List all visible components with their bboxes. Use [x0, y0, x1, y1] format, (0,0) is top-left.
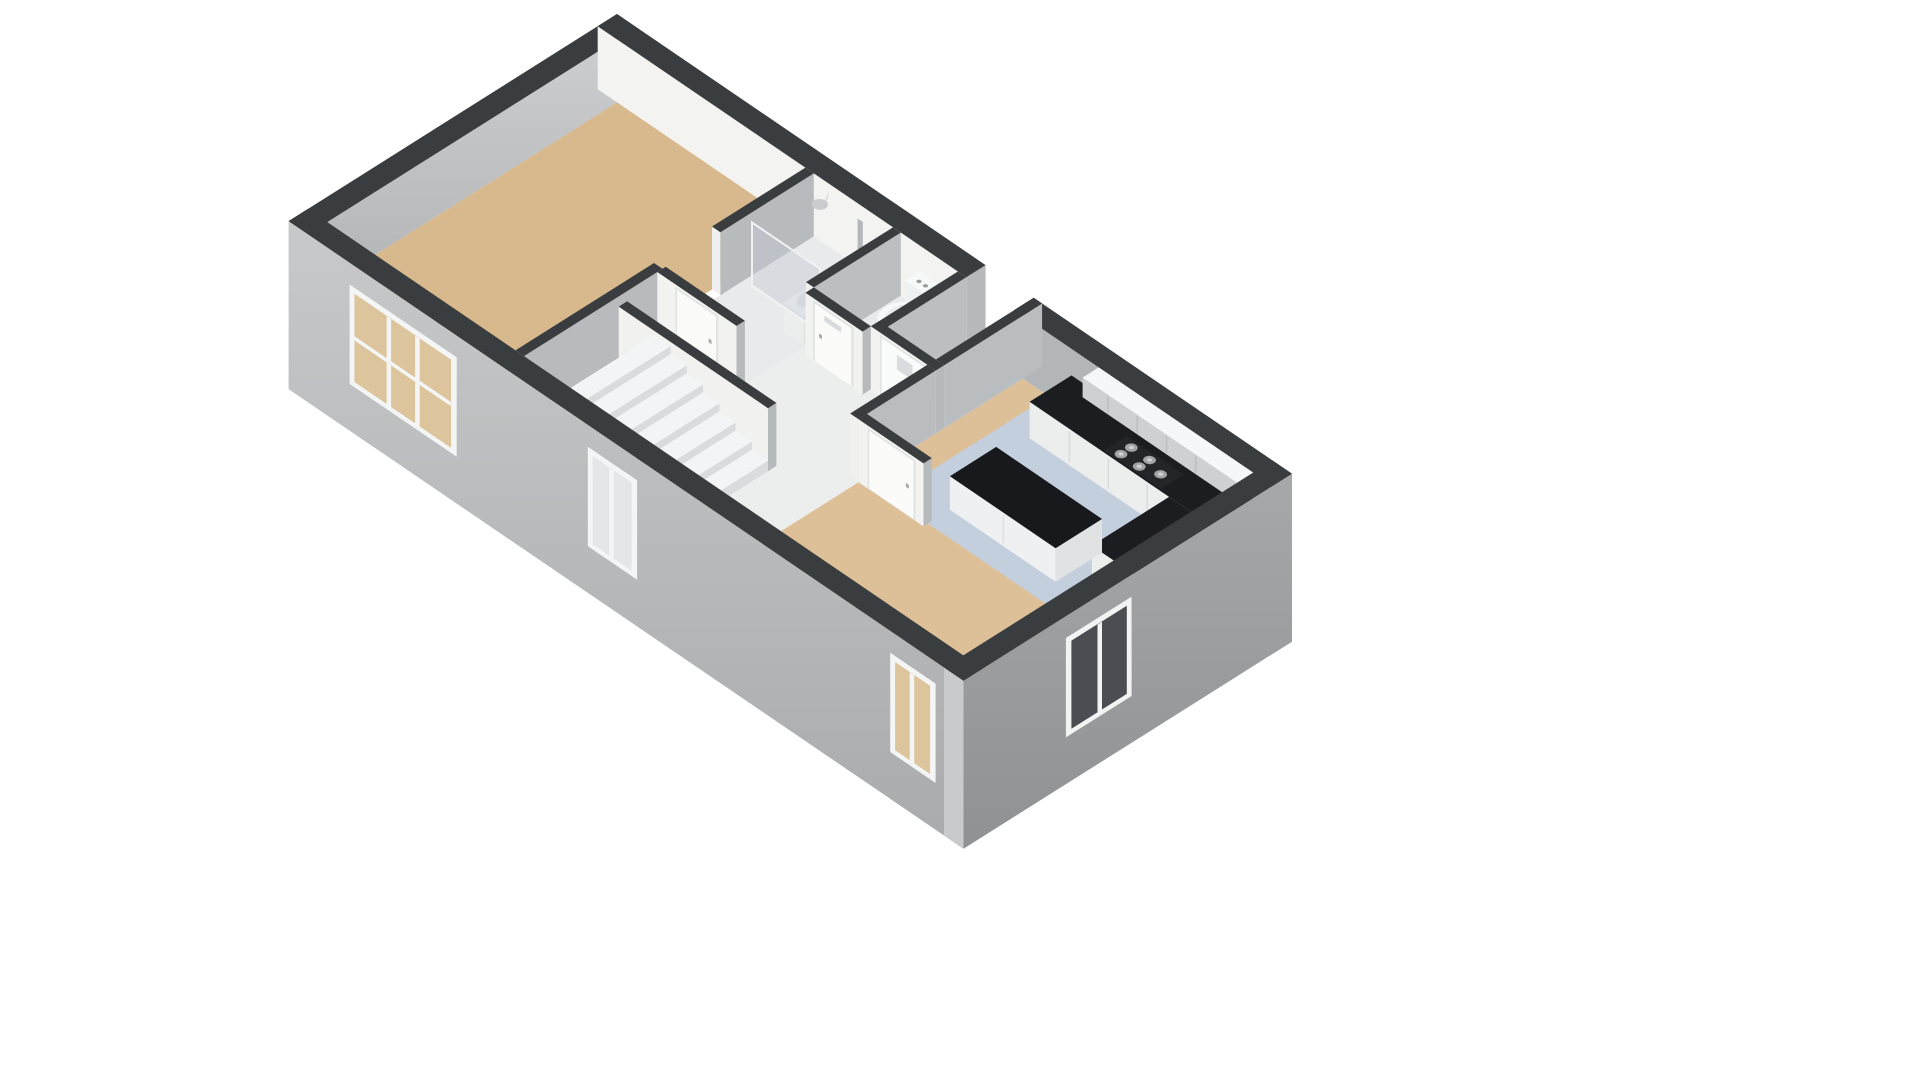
- hall-living-wall: [850, 414, 859, 483]
- kitchen-counter-seam: [1108, 458, 1110, 489]
- living-window-mullion: [910, 672, 915, 763]
- right-exterior-wall: [944, 668, 964, 849]
- kitchen-upper-cabinets-seam: [1137, 416, 1139, 434]
- living-door-wall: [924, 458, 932, 526]
- kitchen-counter-seam: [1069, 431, 1071, 462]
- bedroom-wall-upper: [712, 227, 720, 296]
- stairs-window-mullion: [609, 468, 614, 559]
- kitchen-upper-cabinets-seam: [1107, 396, 1109, 414]
- kitchen-upper-cabinets-seam: [1166, 436, 1168, 454]
- kitchen-island-seam: [1002, 515, 1004, 544]
- front-door-wall: [936, 365, 944, 433]
- floorplan-3d-view: [0, 0, 1920, 1080]
- kitchen-upper-cabinets-seam: [1195, 455, 1197, 473]
- floorplan-scene: [289, 14, 1292, 849]
- kitchen-window-mullion: [1098, 622, 1103, 713]
- stairs-side-wall: [768, 403, 776, 471]
- toilet-front-wall: [863, 326, 871, 394]
- floorplan-canvas: [0, 0, 1920, 1080]
- back-wall-left: [966, 265, 985, 340]
